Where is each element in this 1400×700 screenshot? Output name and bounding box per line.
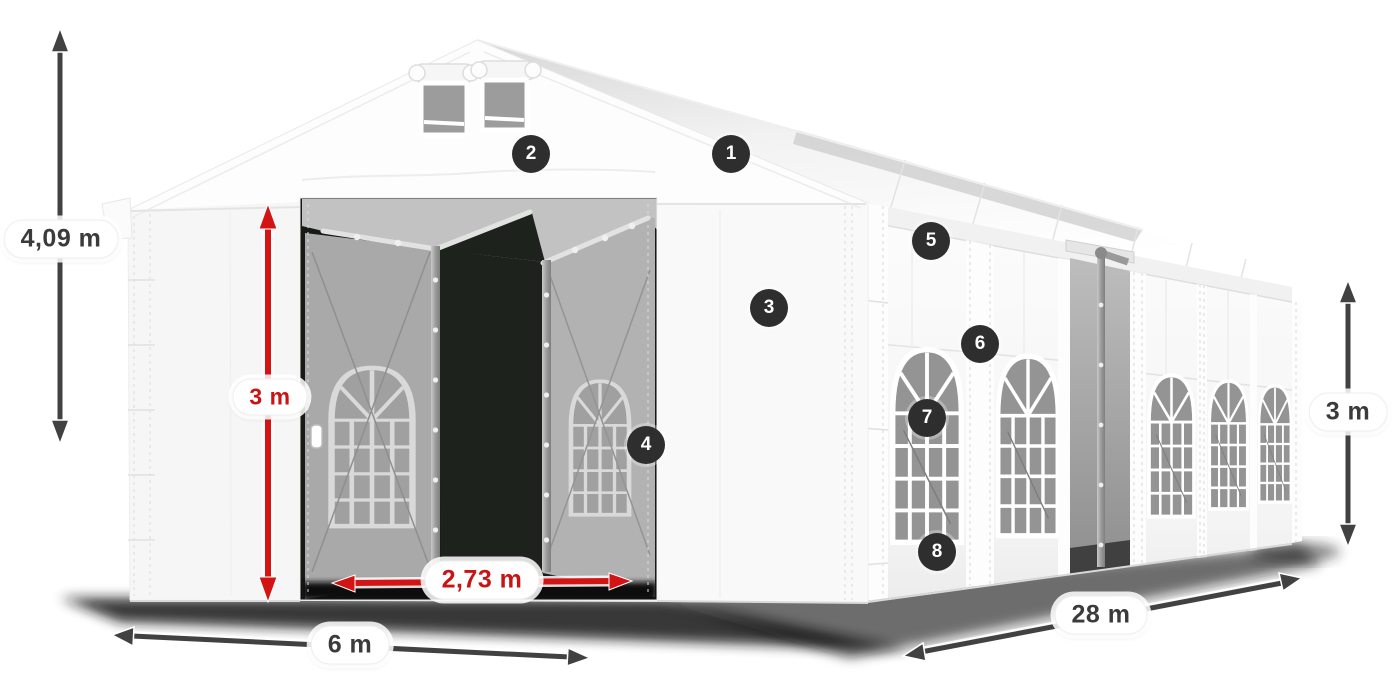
callout-badge-1[interactable]: 1 [712,135,750,173]
label-length: 28 m [1055,596,1148,635]
label-front-width: 6 m [311,626,390,665]
side-window-1 [893,350,962,543]
side-window-4 [1210,381,1248,509]
gable-vent-left [409,64,479,135]
label-total-height: 4,09 m [4,220,119,259]
side-opening-pole [1097,252,1105,567]
label-entrance-width: 2,73 m [425,561,540,600]
callout-badge-8[interactable]: 8 [918,533,956,571]
side-window-5 [1259,386,1291,502]
callout-badge-3[interactable]: 3 [750,289,788,327]
interior-window-left [332,368,413,526]
door-handle [311,425,322,448]
callout-badge-7[interactable]: 7 [908,399,946,437]
callout-badge-2[interactable]: 2 [512,135,550,173]
interior-window-right [571,381,629,515]
side-window-3 [1149,375,1194,516]
callout-badge-5[interactable]: 5 [912,222,950,260]
side-opening [1066,240,1134,575]
tent-dimensions-figure: 4,09 m 3 m 2,73 m 6 m 28 m 3 m 1 2 3 4 5… [0,0,1400,700]
label-side-height: 3 m [1309,393,1388,432]
callout-badge-4[interactable]: 4 [627,426,665,464]
callout-badge-6[interactable]: 6 [961,325,999,363]
tent-illustration [0,0,1400,700]
entrance-interior [300,198,657,600]
label-entrance-height: 3 m [232,379,307,416]
entrance-pole-right [542,260,551,572]
side-window-2 [998,356,1058,535]
